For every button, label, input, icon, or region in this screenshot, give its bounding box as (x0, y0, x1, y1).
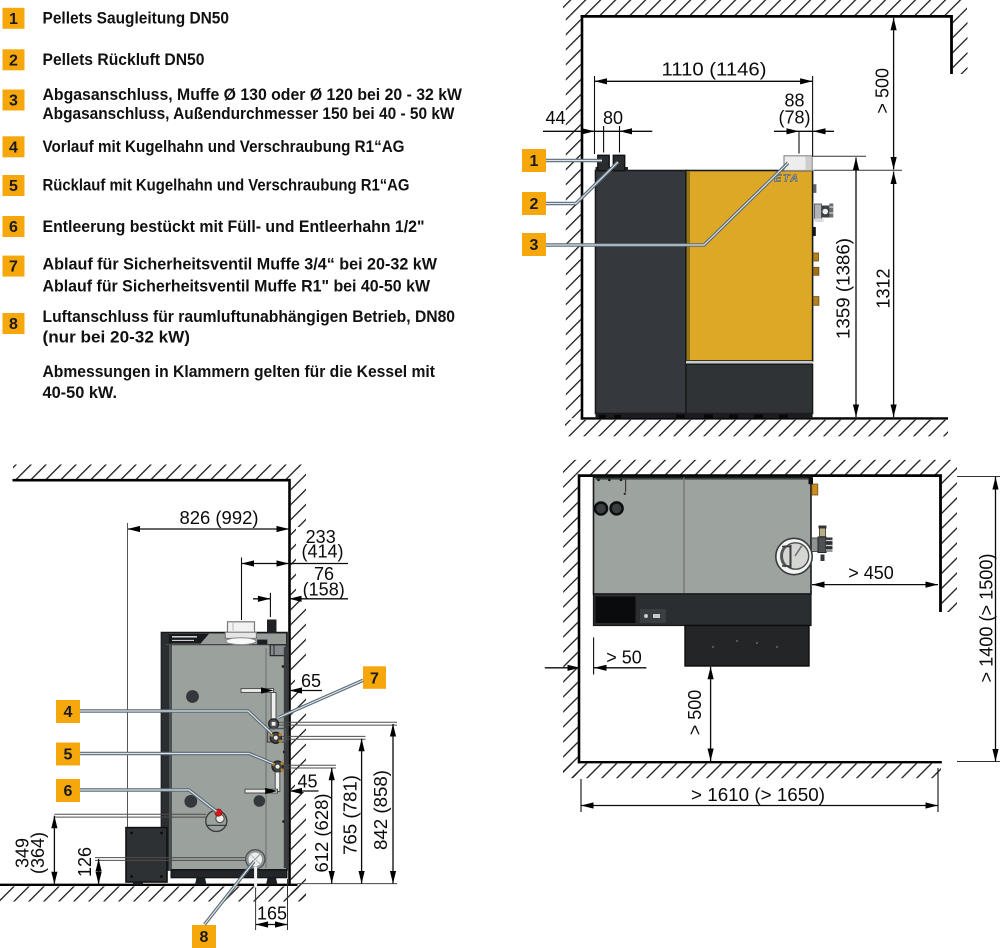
svg-text:7: 7 (370, 671, 379, 688)
svg-text:Entleerung bestückt mit Füll-: Entleerung bestückt mit Füll- und Entlee… (43, 217, 425, 236)
svg-text:8: 8 (9, 316, 18, 333)
svg-text:(nur bei 20-32 kW): (nur bei 20-32 kW) (43, 328, 191, 347)
svg-text:Pellets Rückluft DN50: Pellets Rückluft DN50 (43, 50, 205, 69)
svg-text:3: 3 (9, 93, 18, 110)
svg-text:Vorlauf mit Kugelhahn und Vers: Vorlauf mit Kugelhahn und Verschraubung … (43, 137, 405, 156)
svg-text:4: 4 (64, 704, 73, 721)
svg-text:> 500: > 500 (685, 690, 705, 736)
svg-text:5: 5 (64, 747, 73, 764)
svg-text:Luftanschluss für raumluftunab: Luftanschluss für raumluftunabhängigen B… (43, 307, 456, 326)
svg-text:4: 4 (9, 139, 18, 156)
svg-text:Ablauf für Sicherheitsventil M: Ablauf für Sicherheitsventil Muffe R1" b… (43, 277, 431, 296)
svg-text:(364): (364) (28, 832, 48, 874)
svg-text:126: 126 (75, 847, 95, 877)
svg-text:1359 (1386): 1359 (1386) (834, 238, 854, 339)
svg-text:826 (992): 826 (992) (180, 508, 259, 528)
svg-text:8: 8 (200, 929, 209, 946)
svg-text:3: 3 (530, 237, 539, 254)
svg-text:(414): (414) (301, 542, 343, 562)
svg-text:> 1610 (> 1650): > 1610 (> 1650) (691, 785, 825, 805)
svg-text:612 (628): 612 (628) (312, 794, 332, 873)
svg-text:Ablauf für Sicherheitsventil M: Ablauf für Sicherheitsventil Muffe 3/4“ … (43, 255, 438, 274)
svg-text:1110 (1146): 1110 (1146) (662, 60, 767, 80)
svg-text:> 450: > 450 (848, 563, 894, 583)
svg-text:> 1400 (> 1500): > 1400 (> 1500) (977, 554, 997, 683)
svg-text:40-50 kW.: 40-50 kW. (43, 383, 118, 402)
svg-text:65: 65 (301, 671, 321, 691)
svg-text:1312: 1312 (874, 268, 894, 308)
svg-text:> 500: > 500 (873, 68, 893, 114)
svg-text:> 50: > 50 (606, 648, 642, 668)
svg-text:2: 2 (9, 52, 18, 69)
svg-text:Abgasanschluss, Muffe Ø 130 od: Abgasanschluss, Muffe Ø 130 oder Ø 120 b… (43, 85, 463, 104)
svg-text:Rücklauf mit Kugelhahn und Ver: Rücklauf mit Kugelhahn und Verschraubung… (43, 176, 410, 195)
svg-text:Abmessungen in Klammern gelten: Abmessungen in Klammern gelten für die K… (43, 362, 436, 381)
svg-text:(78): (78) (778, 108, 810, 128)
svg-text:1: 1 (9, 11, 18, 28)
svg-text:44: 44 (545, 108, 565, 128)
svg-text:Abgasanschluss, Außendurchmess: Abgasanschluss, Außendurchmesser 150 bei… (43, 104, 456, 123)
svg-text:6: 6 (64, 783, 73, 800)
svg-text:(158): (158) (303, 580, 345, 600)
svg-text:765 (781): 765 (781) (341, 775, 361, 855)
svg-text:2: 2 (530, 196, 539, 213)
svg-text:842 (858): 842 (858) (371, 770, 391, 850)
svg-text:6: 6 (9, 219, 18, 236)
svg-text:165: 165 (257, 904, 287, 924)
svg-text:45: 45 (297, 772, 317, 792)
svg-text:7: 7 (9, 259, 18, 276)
svg-text:80: 80 (603, 108, 623, 128)
svg-text:1: 1 (530, 153, 539, 170)
svg-text:Pellets Saugleitung DN50: Pellets Saugleitung DN50 (43, 9, 230, 28)
svg-text:5: 5 (9, 178, 18, 195)
